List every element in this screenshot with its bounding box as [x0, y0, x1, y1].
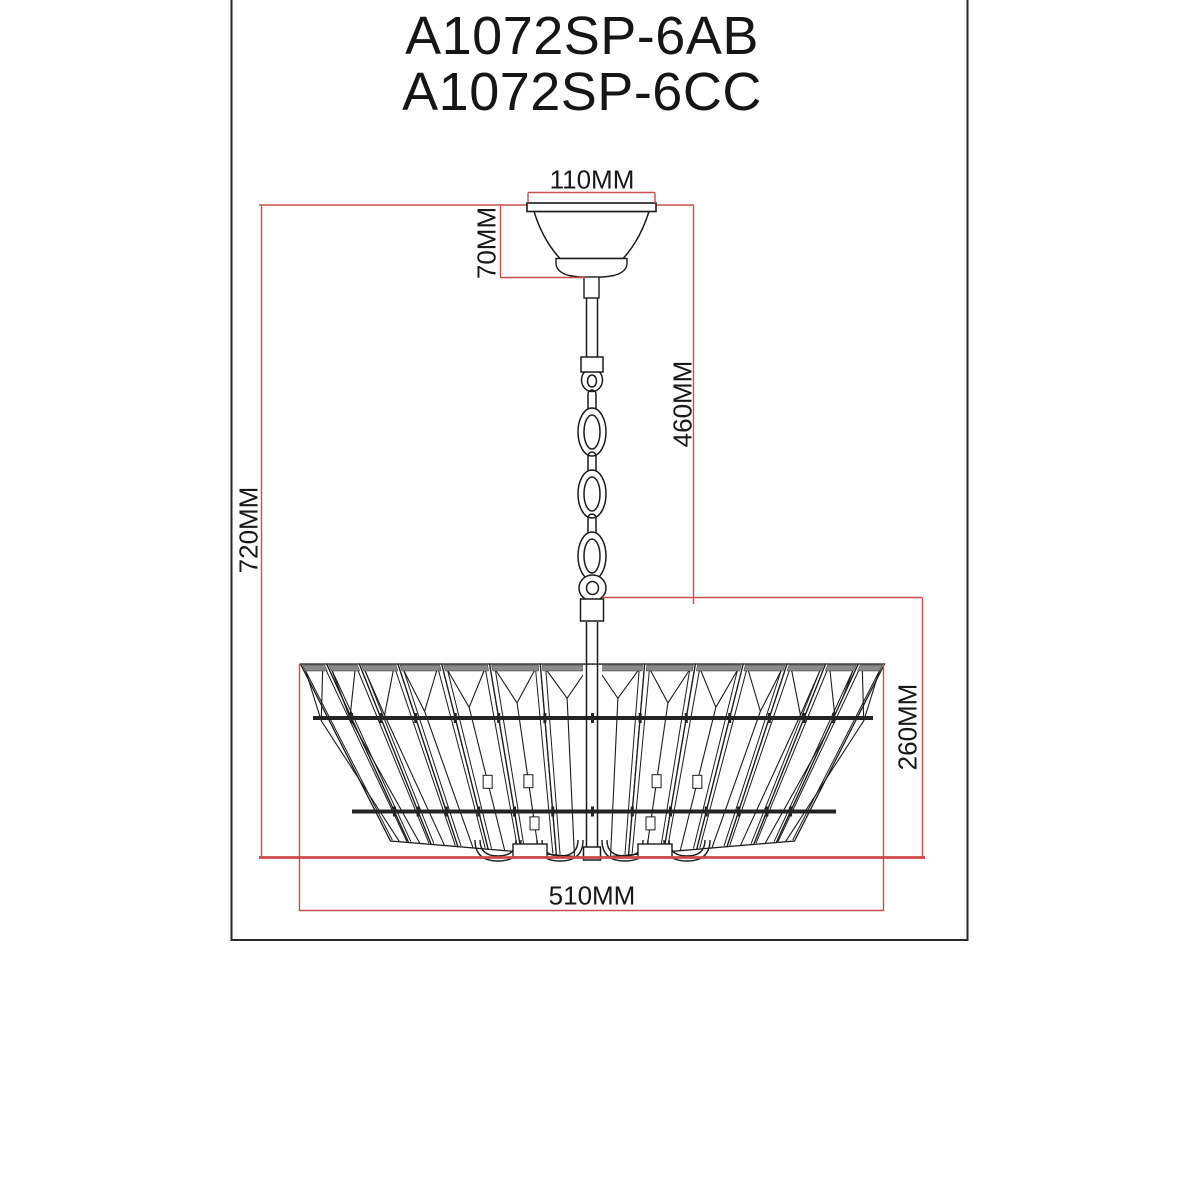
dim-label-canopy-height: 70MM: [472, 207, 503, 279]
dim-label-shade-width: 510MM: [549, 881, 636, 912]
suspension-chain: [578, 297, 606, 621]
dim-label-total-height: 720MM: [234, 487, 265, 574]
product-code-line-1: A1072SP-6AB: [342, 8, 822, 64]
dim-label-canopy-width: 110MM: [550, 165, 635, 196]
drawing-page: A1072SP-6AB A1072SP-6CC 110MM 70MM 460MM…: [0, 0, 1200, 1200]
dim-label-chain-length: 460MM: [668, 361, 699, 448]
dim-label-shade-height: 260MM: [893, 684, 924, 771]
product-code-line-2: A1072SP-6CC: [342, 64, 822, 120]
product-codes: A1072SP-6AB A1072SP-6CC: [342, 8, 822, 120]
ceiling-canopy: [527, 203, 656, 298]
